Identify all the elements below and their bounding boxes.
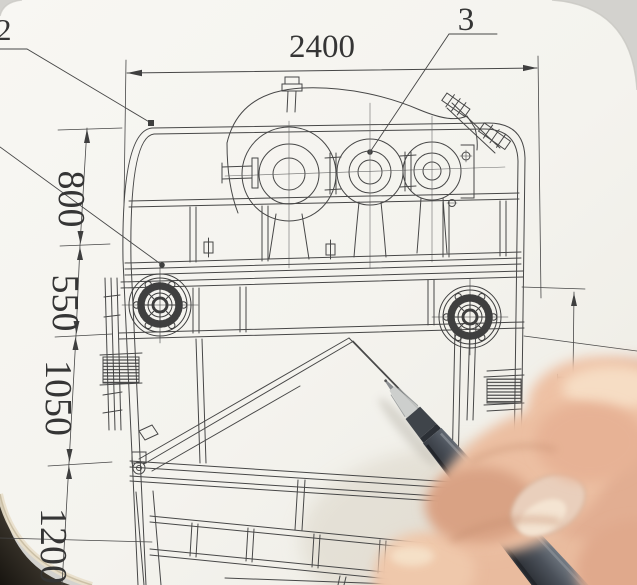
callout-label-2: 2	[0, 12, 12, 47]
callout-label-3: 3	[458, 2, 475, 38]
dim-label-800: 800	[50, 171, 92, 228]
dim-label-1200: 1200	[32, 508, 74, 584]
dim-label-2400: 2400	[289, 29, 355, 65]
dim-label-550: 550	[44, 275, 86, 332]
dim-label-1050: 1050	[37, 360, 79, 436]
drawing-photo: 2400 3 2 800 550 1050 1200 1403	[0, 0, 637, 585]
photo-of-engineering-drawing: 2400 3 2 800 550 1050 1200 1403	[0, 0, 637, 585]
